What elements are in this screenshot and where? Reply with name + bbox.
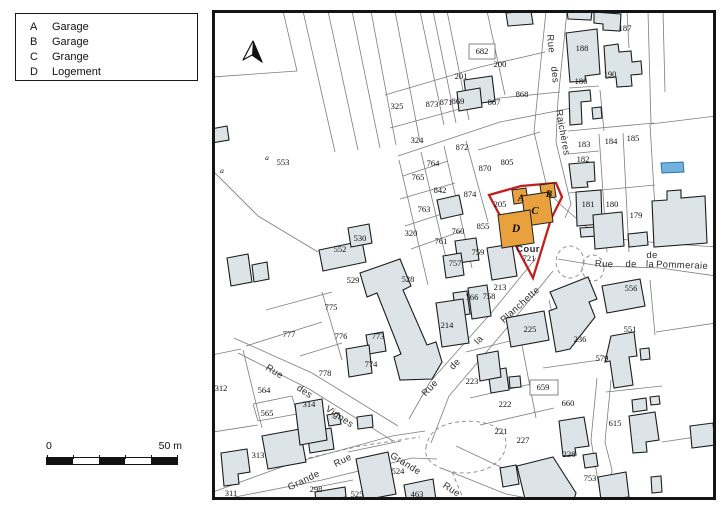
parcel-number: 200	[494, 59, 507, 69]
building	[437, 195, 463, 219]
area-letter: a	[220, 166, 224, 175]
parcel-number: 187	[619, 23, 632, 33]
parcel-number: 855	[477, 221, 490, 231]
parcel-number: 873	[426, 99, 439, 109]
parcel-number: 528	[402, 274, 415, 284]
building	[651, 476, 662, 493]
building	[477, 351, 501, 381]
parcel-number: 565	[261, 408, 274, 418]
cadastral-plan-page: AGarageBGarageCGrangeDLogement 0 50 m	[0, 0, 728, 515]
parcel-number: 753	[584, 473, 597, 483]
parcel-number: 766	[466, 292, 479, 302]
parcel-number: 183	[578, 139, 591, 149]
parcel-number: 564	[258, 385, 272, 395]
parcel-number: 778	[319, 368, 332, 378]
parcel-number: 682	[476, 46, 489, 56]
parcel-number: 842	[434, 185, 447, 195]
building	[640, 348, 650, 360]
parcel-number: 214	[441, 320, 455, 330]
parcel-number: 758	[483, 291, 496, 301]
parcel-number: 556	[625, 283, 638, 293]
parcel-number: 228	[563, 449, 576, 459]
parcel-number: 775	[325, 302, 338, 312]
parcel-number: 759	[472, 247, 485, 257]
parcel-number: 529	[347, 275, 360, 285]
parcel-number: 225	[524, 324, 537, 334]
parcel-number: 765	[412, 172, 425, 182]
parcel-number: 757	[449, 258, 462, 268]
subject-letter: B	[545, 190, 552, 200]
parcel-number: 221	[495, 426, 508, 436]
parcel-number: 774	[365, 359, 379, 369]
building	[566, 29, 600, 82]
parcel-number: 314	[303, 399, 317, 409]
parcel-number: 320	[405, 228, 418, 238]
parcel-number: 867	[488, 97, 501, 107]
parcel-number: 325	[391, 101, 404, 111]
street-name: la	[646, 259, 655, 270]
parcel-number: 551	[624, 324, 637, 334]
street-name: des	[548, 66, 561, 84]
subject-letter: C	[531, 205, 539, 217]
parcel-number: 776	[335, 331, 348, 341]
parcel-number: 761	[435, 236, 448, 246]
parcel-number: 773	[372, 331, 385, 341]
building	[487, 244, 517, 280]
parcel-number: 186	[575, 76, 588, 86]
parcel-number: 185	[627, 133, 640, 143]
parcel-number: 868	[516, 89, 529, 99]
parcel-number: 872	[456, 142, 469, 152]
parcel-number: 227	[517, 435, 530, 445]
subject-letter: A	[517, 194, 524, 204]
parcel-number: 222	[499, 399, 512, 409]
parcel-number: 660	[562, 398, 575, 408]
parcel-number: 213	[494, 282, 507, 292]
parcel-number: 579	[596, 353, 609, 363]
pond	[661, 162, 684, 173]
subject-letter: D	[511, 223, 521, 235]
building	[592, 107, 602, 119]
parcel-number: 659	[537, 382, 550, 392]
parcel-number: 764	[427, 158, 441, 168]
parcel-number: 182	[577, 154, 590, 164]
area-letter: a	[265, 153, 269, 162]
parcel-number: 190	[604, 69, 617, 79]
parcel-number: 223	[466, 376, 479, 386]
cadastral-map: 6822002013258738718698678688051871881901…	[0, 0, 728, 515]
parcel-number: 805	[501, 157, 514, 167]
parcel-number: 552	[334, 244, 347, 254]
building	[509, 376, 521, 388]
parcel-number: 869	[452, 96, 465, 106]
building	[593, 212, 624, 249]
parcel-number: 184	[605, 136, 619, 146]
street-name: de	[625, 259, 637, 270]
parcel-number: 201	[455, 71, 468, 81]
building	[500, 465, 519, 487]
parcel-number: 311	[225, 488, 237, 498]
parcel-number: 760	[452, 226, 465, 236]
building	[583, 453, 598, 468]
building	[227, 254, 252, 286]
parcel-number: 870	[479, 163, 492, 173]
parcel-number: 530	[354, 233, 367, 243]
parcel-number: 312	[215, 383, 228, 393]
street-name: Pommeraie	[656, 259, 709, 272]
parcel-number: 298	[310, 484, 323, 494]
parcel-number: 874	[464, 189, 478, 199]
building	[650, 396, 660, 405]
building	[598, 472, 629, 500]
parcel-number: 205	[494, 199, 507, 209]
parcel-number: 871	[440, 97, 453, 107]
building	[357, 415, 373, 429]
street-name: Cour	[516, 244, 540, 255]
building	[632, 398, 647, 412]
parcel-number: 236	[574, 334, 587, 344]
building	[628, 232, 648, 247]
parcel-number: 777	[283, 329, 296, 339]
parcel-number: 179	[630, 210, 643, 220]
parcel-number: 180	[606, 199, 619, 209]
parcel-number: 324	[411, 135, 425, 145]
building	[506, 11, 533, 26]
parcel-number: 615	[609, 418, 622, 428]
parcel-number: 763	[418, 204, 431, 214]
parcel-number: 188	[576, 43, 589, 53]
street-name: Rue	[544, 34, 557, 54]
street-name: Rue	[595, 259, 614, 271]
parcel-number: 313	[252, 450, 265, 460]
building	[252, 262, 269, 282]
building	[690, 423, 715, 448]
parcel-number: 553	[277, 157, 290, 167]
parcel-number: 181	[582, 199, 595, 209]
